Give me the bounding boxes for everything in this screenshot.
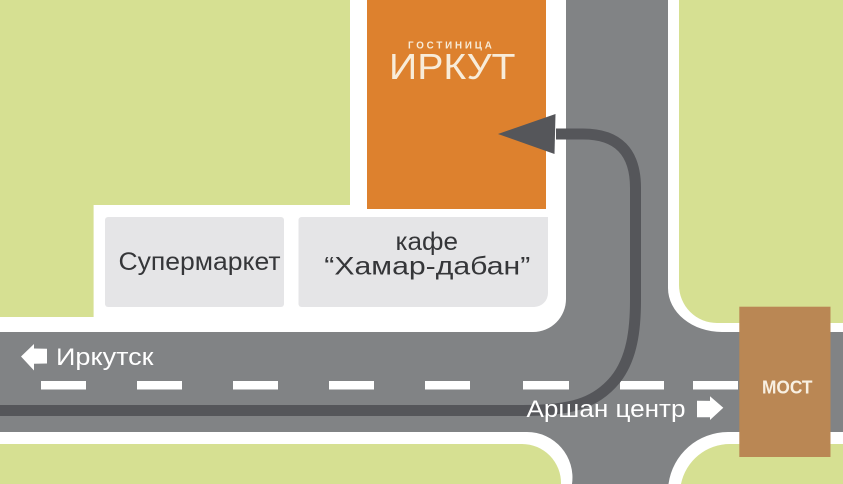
svg-text:“Хамар-дабан”: “Хамар-дабан” — [324, 253, 530, 281]
svg-text:Иркутск: Иркутск — [56, 344, 154, 371]
svg-text:ИРКУТ: ИРКУТ — [389, 46, 516, 87]
svg-text:Супермаркет: Супермаркет — [119, 248, 282, 276]
svg-text:МОСТ: МОСТ — [762, 376, 813, 397]
svg-text:Аршан центр: Аршан центр — [527, 396, 686, 423]
